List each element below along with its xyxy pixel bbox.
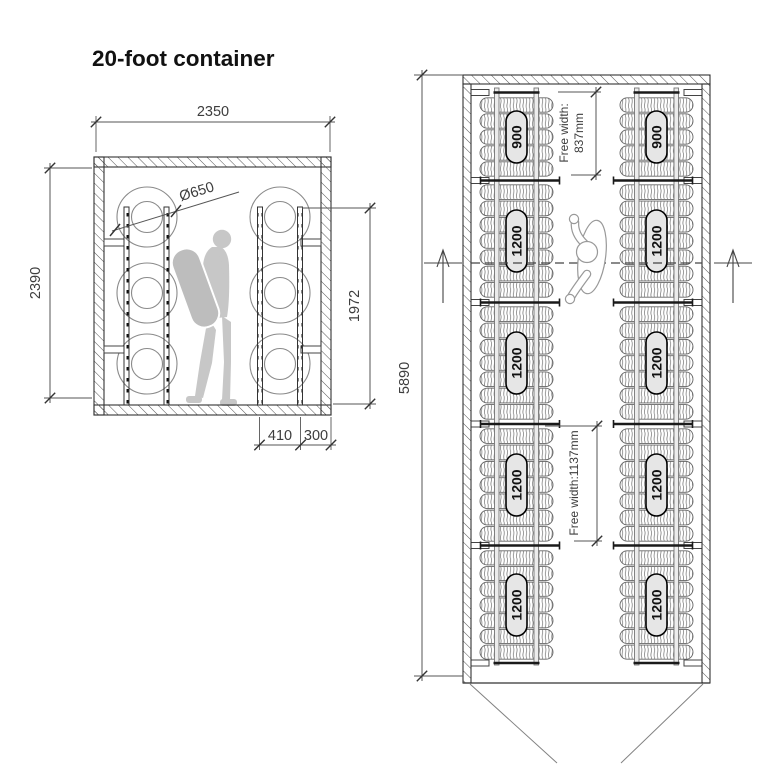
dimension-2350: 2350 — [91, 104, 335, 152]
rack-rail — [495, 88, 500, 665]
stack-length-label: 900 — [509, 125, 525, 149]
dim-label-rack-height: 1972 — [347, 290, 363, 322]
dim-label-rack-depth: 410 — [268, 428, 292, 444]
worker-hand — [565, 294, 574, 303]
tire-top-view — [620, 307, 693, 322]
tire-top-view — [620, 185, 693, 200]
tire-top-view — [620, 98, 693, 112]
tire-top-view — [620, 162, 693, 176]
wall-floor — [94, 405, 331, 415]
worker-silhouette — [168, 230, 237, 406]
rack-post — [164, 207, 169, 405]
free-width-mid-label: Free width:1137mm — [567, 430, 581, 535]
door-right — [621, 684, 703, 763]
dim-label-wall-gap: 300 — [304, 428, 328, 444]
free-width-top-label-1: Free width: — [557, 103, 571, 162]
rack-wall-arm — [471, 90, 489, 96]
stack-length-label: 1200 — [649, 225, 665, 256]
tire-top-view — [620, 551, 693, 565]
dim-label-width: 2350 — [197, 104, 229, 120]
section-arrow-right — [714, 250, 752, 303]
tire-top-view — [480, 645, 553, 659]
stack-length-label: 900 — [649, 125, 665, 149]
wall-right — [321, 157, 331, 415]
stack-length-label: 1200 — [509, 469, 525, 500]
dimension-free-width-1137: Free width:1137mm — [545, 421, 602, 546]
stack-length-label: 1200 — [509, 589, 525, 620]
tire-top-view — [480, 405, 553, 420]
wall-left — [94, 157, 104, 415]
tire-top-view — [480, 162, 553, 176]
tire-top-view — [480, 551, 553, 565]
tire-top-view — [480, 429, 553, 444]
rack-post — [258, 207, 263, 405]
tire-top-view — [480, 185, 553, 200]
rack-wall-arm — [471, 660, 489, 666]
wall-end — [463, 75, 710, 84]
worker-hand — [569, 214, 578, 223]
stack-length-label: 1200 — [509, 347, 525, 378]
stack-length-label: 1200 — [649, 589, 665, 620]
worker-head — [577, 242, 598, 263]
page-title: 20-foot container — [92, 46, 275, 71]
tire-top-view — [620, 283, 693, 298]
dimension-2390: 2390 — [28, 163, 92, 403]
rack-rail — [534, 88, 539, 665]
rack-rail — [635, 88, 640, 665]
tire-top-view — [620, 645, 693, 659]
dimension-410-300: 410 300 — [254, 417, 336, 450]
dim-label-length: 5890 — [397, 362, 413, 394]
container-loading-diagram: 20-foot container — [0, 0, 770, 770]
tire-top-view — [620, 405, 693, 420]
tire-top-view — [480, 283, 553, 298]
stack-length-label: 1200 — [649, 347, 665, 378]
free-width-top-label-2: 837mm — [572, 113, 586, 153]
dimension-5890: 5890 — [397, 70, 463, 681]
tire-top-view — [620, 527, 693, 542]
door-left — [470, 684, 557, 763]
technical-drawing-page: 20-foot container — [0, 0, 770, 770]
stack-length-label: 1200 — [509, 225, 525, 256]
tire-top-view — [480, 98, 553, 112]
rack-wall-arm — [684, 90, 702, 96]
wall-side-right — [702, 84, 710, 683]
cross-section-view: 2350 2390 1972 410 300 — [28, 104, 376, 450]
plan-view: 90012001200120012009001200120012001200 — [397, 70, 752, 763]
rack-rail — [674, 88, 679, 665]
worker-top-view — [565, 214, 610, 303]
wall-top — [94, 157, 331, 167]
rack-post — [124, 207, 129, 405]
dimension-1972: 1972 — [302, 203, 376, 409]
tire-top-view — [480, 307, 553, 322]
wall-side-left — [463, 84, 471, 683]
tire-top-view — [620, 429, 693, 444]
tire-top-view — [480, 527, 553, 542]
open-doors — [470, 684, 703, 763]
dim-label-height: 2390 — [28, 267, 44, 299]
dimension-free-width-837: Free width: 837mm — [557, 87, 601, 180]
rack-wall-arm — [684, 660, 702, 666]
stack-length-label: 1200 — [649, 469, 665, 500]
section-arrow-left — [424, 250, 462, 303]
rack-post — [298, 207, 303, 405]
